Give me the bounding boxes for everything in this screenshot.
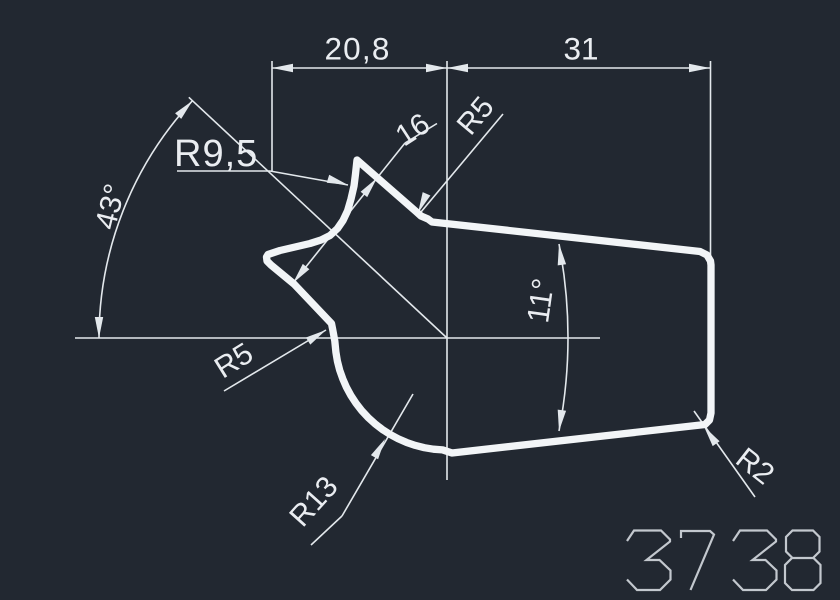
svg-text:20,8: 20,8 xyxy=(324,31,390,67)
svg-text:11°: 11° xyxy=(520,276,561,325)
svg-text:31: 31 xyxy=(563,31,598,67)
svg-text:R9,5: R9,5 xyxy=(174,133,258,175)
